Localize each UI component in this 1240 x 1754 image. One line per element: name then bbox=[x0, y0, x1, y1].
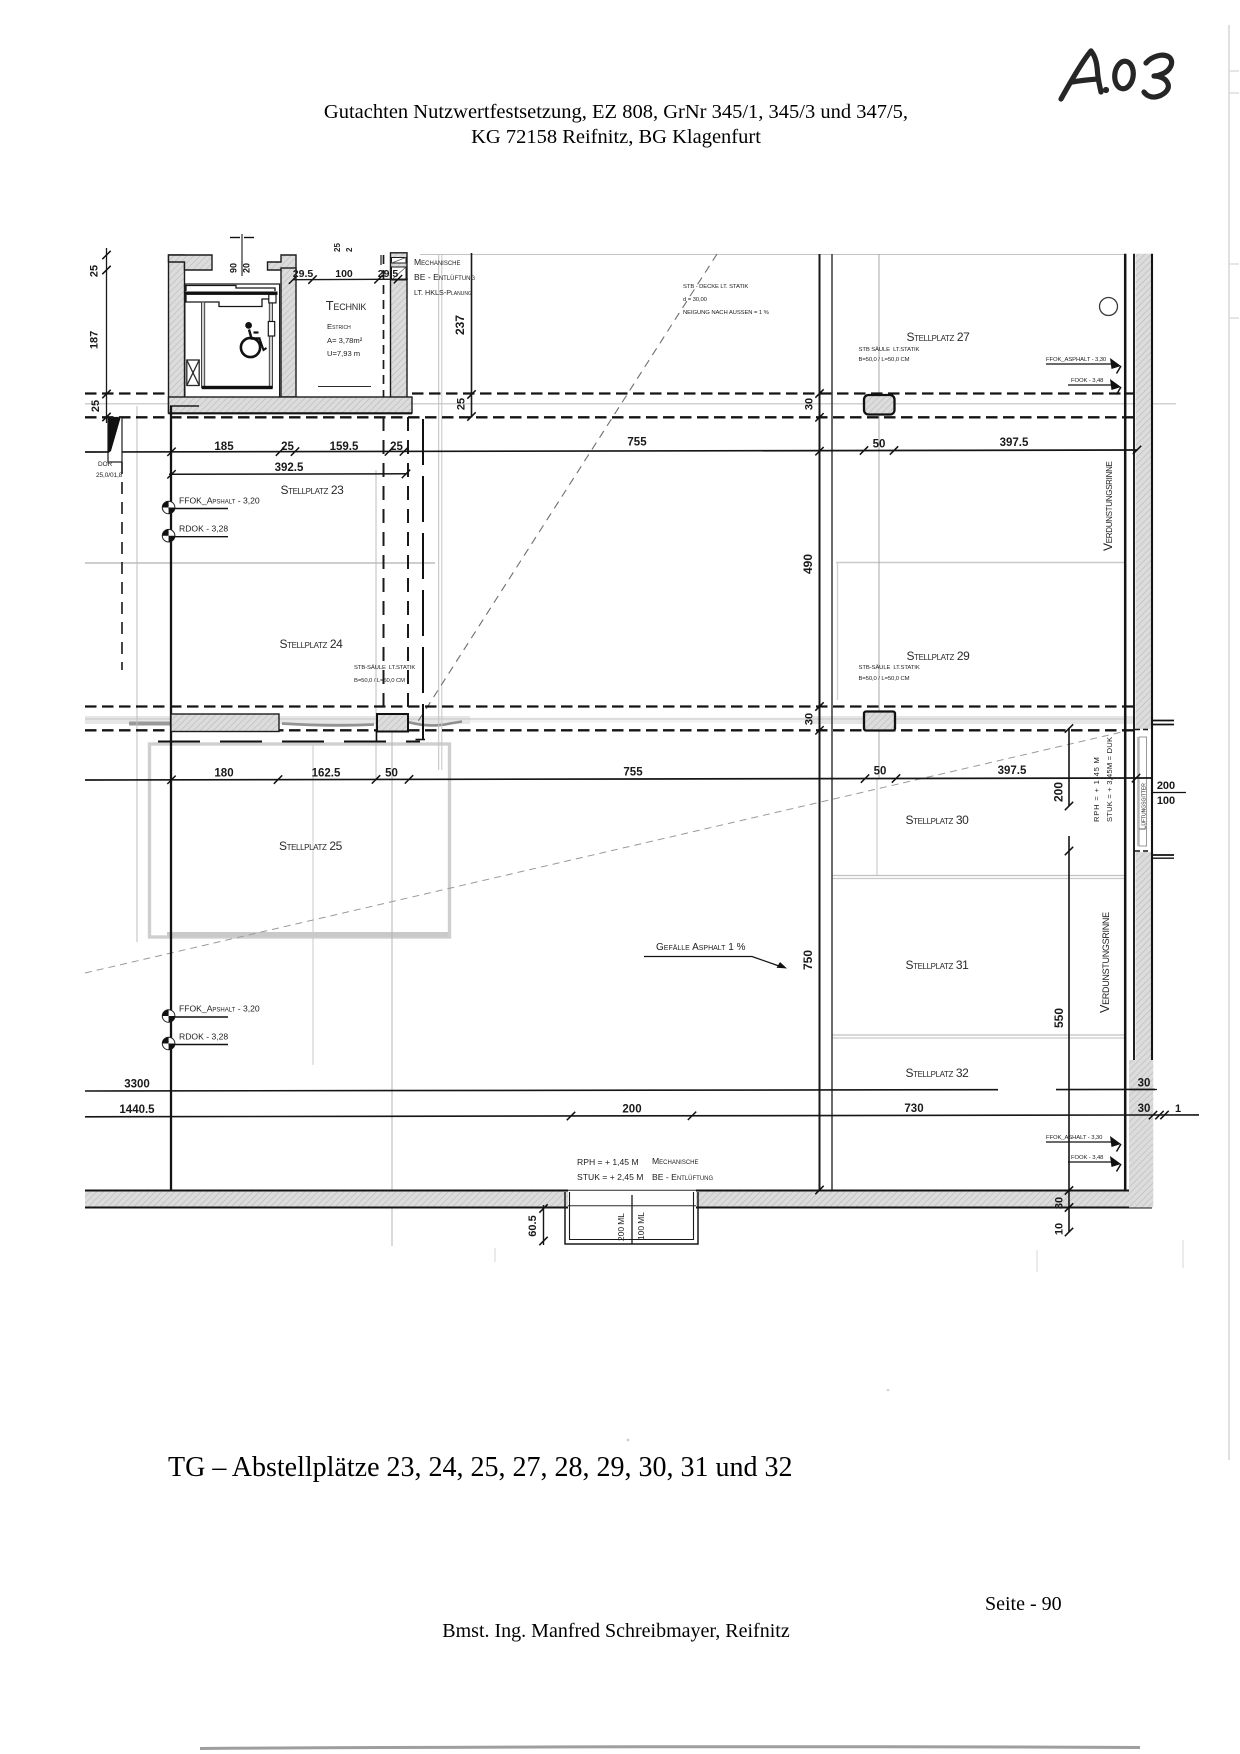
svg-text:100 ML: 100 ML bbox=[636, 1212, 646, 1240]
svg-text:Stellplatz 29: Stellplatz 29 bbox=[907, 649, 971, 663]
svg-text:30: 30 bbox=[1138, 1103, 1151, 1115]
svg-text:25: 25 bbox=[90, 400, 102, 412]
svg-text:50: 50 bbox=[873, 439, 886, 451]
svg-text:Bmst. Ing. Manfred Schreibmaye: Bmst. Ing. Manfred Schreibmayer, Reifnit… bbox=[442, 1620, 790, 1642]
svg-text:FOOK - 3,48: FOOK - 3,48 bbox=[1071, 1155, 1104, 1161]
svg-text:STB-SÄULE LT.STATIK: STB-SÄULE LT.STATIK bbox=[354, 664, 415, 671]
svg-text:397.5: 397.5 bbox=[1000, 437, 1029, 449]
svg-text:25: 25 bbox=[281, 441, 294, 453]
svg-text:Mechanische: Mechanische bbox=[414, 257, 461, 267]
svg-text:STUK = + 2,45 M: STUK = + 2,45 M bbox=[577, 1172, 643, 1182]
svg-text:29.5: 29.5 bbox=[293, 268, 314, 280]
svg-text:50: 50 bbox=[874, 766, 887, 778]
svg-text:Stellplatz 23: Stellplatz 23 bbox=[281, 483, 345, 497]
svg-text:TG – Abstellplätze 23, 24, 25,: TG – Abstellplätze 23, 24, 25, 27, 28, 2… bbox=[168, 1452, 793, 1483]
svg-text:FFOK_ASPHALT - 3,30: FFOK_ASPHALT - 3,30 bbox=[1046, 357, 1107, 363]
svg-text:25: 25 bbox=[89, 265, 101, 277]
svg-text:25,0/01,8: 25,0/01,8 bbox=[96, 472, 123, 479]
svg-text:490: 490 bbox=[801, 554, 815, 574]
svg-text:200 ML: 200 ML bbox=[616, 1213, 626, 1241]
svg-text:U=7,93 m: U=7,93 m bbox=[327, 349, 360, 358]
svg-text:Gefälle Asphalt 1 %: Gefälle Asphalt 1 % bbox=[656, 942, 746, 953]
svg-text:KG 72158 Reifnitz, BG Klagenfu: KG 72158 Reifnitz, BG Klagenfurt bbox=[471, 126, 761, 148]
svg-text:29.5: 29.5 bbox=[378, 268, 399, 280]
svg-text:B=50,0 / L=50,0 CM: B=50,0 / L=50,0 CM bbox=[859, 676, 910, 682]
svg-text:237: 237 bbox=[453, 315, 467, 335]
svg-text:100: 100 bbox=[1157, 795, 1175, 807]
svg-text:Estrich: Estrich bbox=[327, 322, 351, 331]
svg-text:FOOK - 3,48: FOOK - 3,48 bbox=[1071, 378, 1104, 384]
svg-text:755: 755 bbox=[623, 767, 643, 779]
svg-text:30: 30 bbox=[804, 713, 816, 725]
svg-text:FFOK_Apshalt - 3,20: FFOK_Apshalt - 3,20 bbox=[179, 496, 260, 506]
svg-text:RPH = + 1,45 M: RPH = + 1,45 M bbox=[577, 1157, 639, 1167]
svg-text:3300: 3300 bbox=[124, 1079, 150, 1091]
svg-text:187: 187 bbox=[89, 331, 101, 349]
svg-text:730: 730 bbox=[904, 1103, 923, 1115]
svg-text:FFOK_ASHALT - 3,30: FFOK_ASHALT - 3,30 bbox=[1046, 1135, 1103, 1141]
svg-text:STB-SÄULE LT.STATIK: STB-SÄULE LT.STATIK bbox=[859, 664, 920, 671]
svg-text:BE - Entlüftung: BE - Entlüftung bbox=[414, 272, 475, 282]
svg-text:Stellplatz 30: Stellplatz 30 bbox=[906, 813, 970, 827]
svg-text:Verdunstungsrinne: Verdunstungsrinne bbox=[1098, 912, 1112, 1013]
svg-text:200: 200 bbox=[1157, 780, 1175, 792]
svg-text:30: 30 bbox=[804, 398, 816, 410]
svg-text:750: 750 bbox=[801, 950, 815, 970]
svg-text:STUK = + 3,45M = DUK: STUK = + 3,45M = DUK bbox=[1105, 737, 1114, 822]
svg-text:Stellplatz 32: Stellplatz 32 bbox=[906, 1066, 970, 1080]
svg-text:1: 1 bbox=[1175, 1103, 1181, 1115]
svg-text:755: 755 bbox=[627, 437, 647, 449]
svg-text:20: 20 bbox=[242, 263, 252, 273]
svg-text:25: 25 bbox=[333, 243, 342, 252]
svg-text:B=50,0 / L=50,0 CM: B=50,0 / L=50,0 CM bbox=[859, 357, 910, 363]
svg-text:Technik: Technik bbox=[326, 298, 367, 313]
svg-text:Gutachten Nutzwertfestsetzung,: Gutachten Nutzwertfestsetzung, EZ 808, G… bbox=[324, 101, 908, 123]
svg-text:200: 200 bbox=[622, 1104, 641, 1116]
svg-text:BE - Entlüftung: BE - Entlüftung bbox=[652, 1172, 713, 1182]
svg-text:Stellplatz 27: Stellplatz 27 bbox=[907, 330, 971, 344]
svg-text:RPH = + 1,45 M: RPH = + 1,45 M bbox=[1092, 756, 1101, 822]
svg-text:NEIGUNG NACH AUSSEN = 1 %: NEIGUNG NACH AUSSEN = 1 % bbox=[683, 310, 770, 316]
svg-text:Verdunstungsrinne: Verdunstungsrinne bbox=[1101, 461, 1115, 551]
svg-text:Mechanische: Mechanische bbox=[652, 1156, 699, 1166]
svg-text:LT. HKLS-Planung: LT. HKLS-Planung bbox=[414, 288, 472, 297]
svg-text:100: 100 bbox=[335, 268, 353, 280]
svg-text:180: 180 bbox=[214, 768, 233, 780]
svg-text:STB SÄULE LT.STATIK: STB SÄULE LT.STATIK bbox=[859, 346, 920, 353]
svg-text:30: 30 bbox=[1054, 1197, 1066, 1209]
svg-text:Stellplatz 31: Stellplatz 31 bbox=[906, 958, 970, 972]
svg-text:25: 25 bbox=[456, 398, 468, 410]
svg-text:FFOK_Apshalt - 3,20: FFOK_Apshalt - 3,20 bbox=[179, 1004, 260, 1014]
svg-text:397.5: 397.5 bbox=[998, 765, 1027, 777]
svg-text:90: 90 bbox=[229, 263, 239, 273]
svg-text:30: 30 bbox=[1138, 1078, 1151, 1090]
svg-text:1440.5: 1440.5 bbox=[119, 1104, 155, 1116]
svg-text:Seite - 90: Seite - 90 bbox=[985, 1593, 1062, 1615]
svg-text:162.5: 162.5 bbox=[312, 768, 341, 780]
svg-text:Stellplatz 25: Stellplatz 25 bbox=[279, 839, 343, 853]
svg-text:50: 50 bbox=[385, 768, 398, 780]
svg-text:Stellplatz 24: Stellplatz 24 bbox=[280, 637, 344, 651]
svg-text:159.5: 159.5 bbox=[330, 441, 359, 453]
svg-text:DOR: DOR bbox=[98, 461, 113, 468]
svg-text:185: 185 bbox=[214, 441, 234, 453]
svg-text:RDOK - 3,28: RDOK - 3,28 bbox=[179, 1032, 228, 1042]
svg-text:RDOK - 3,28: RDOK - 3,28 bbox=[179, 524, 228, 534]
svg-text:200: 200 bbox=[1052, 782, 1066, 802]
svg-text:550: 550 bbox=[1052, 1008, 1066, 1028]
svg-text:A= 3,78m²: A= 3,78m² bbox=[327, 336, 363, 345]
svg-text:STB - DECKE LT. STATIK: STB - DECKE LT. STATIK bbox=[683, 284, 748, 290]
svg-text:10: 10 bbox=[1054, 1223, 1066, 1235]
svg-text:B=50,0 / L=50,0 CM: B=50,0 / L=50,0 CM bbox=[354, 678, 405, 684]
svg-text:60.5: 60.5 bbox=[527, 1215, 539, 1236]
svg-text:Lüftungsgitter: Lüftungsgitter bbox=[1139, 783, 1148, 830]
svg-text:2: 2 bbox=[345, 247, 354, 252]
svg-text:25: 25 bbox=[390, 441, 403, 453]
svg-text:392.5: 392.5 bbox=[275, 462, 304, 474]
